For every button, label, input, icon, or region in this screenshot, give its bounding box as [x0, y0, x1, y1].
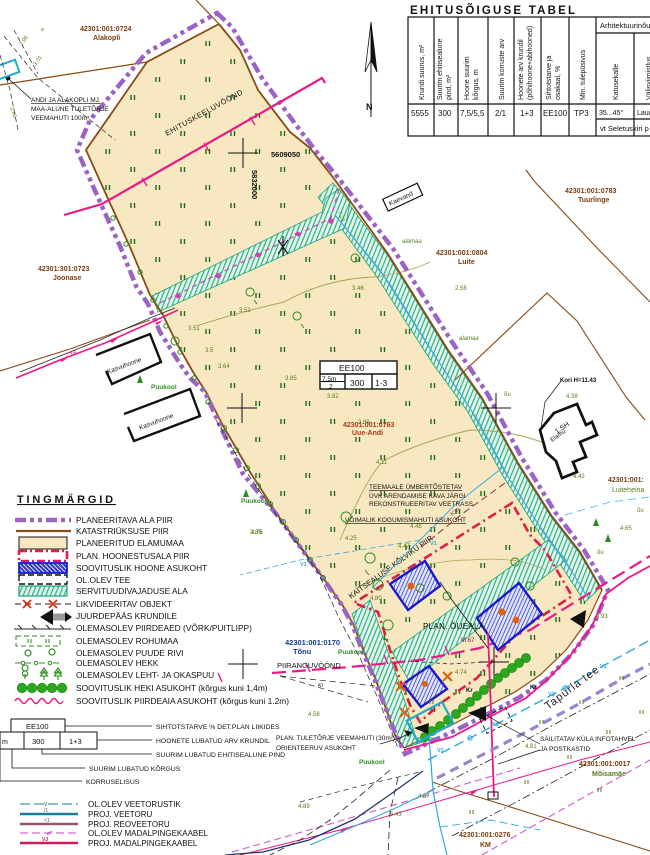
svg-text:PROJ. VEETORU: PROJ. VEETORU	[88, 810, 153, 819]
svg-text:EE100: EE100	[339, 363, 365, 373]
svg-text:Krundi suurus, m²: Krundi suurus, m²	[419, 44, 426, 100]
svg-text:JA POSTKASTID: JA POSTKASTID	[540, 746, 591, 753]
svg-text:3.46: 3.46	[352, 286, 364, 292]
svg-text:1+3: 1+3	[520, 109, 534, 118]
svg-text:42301:001:: 42301:001:	[608, 477, 644, 484]
svg-text:Alakopli: Alakopli	[93, 35, 120, 42]
svg-text:VÕIMALIK KOGUMISMAHUTI ASUKOHT: VÕIMALIK KOGUMISMAHUTI ASUKOHT	[345, 515, 466, 524]
svg-text:Hoonete arv krundil: Hoonete arv krundil	[518, 39, 525, 100]
svg-text:42301:001:0724: 42301:001:0724	[80, 26, 131, 33]
svg-text:m: m	[2, 739, 8, 746]
svg-text:SUURIM LUBATUD EHITISEALUNE PI: SUURIM LUBATUD EHITISEALUNE PIND	[156, 752, 285, 759]
svg-text:V1: V1	[492, 722, 499, 728]
svg-text:Ki: Ki	[318, 683, 324, 689]
svg-text:Laud: Laud	[637, 110, 650, 117]
svg-text:SERVITUUDIVAJADUSE ALA: SERVITUUDIVAJADUSE ALA	[76, 586, 188, 596]
svg-text:Sihtotstarve ja: Sihtotstarve ja	[546, 56, 553, 100]
svg-text:SOOVITUSLIK PIIRDEAIA ASUKOHT: SOOVITUSLIK PIIRDEAIA ASUKOHT (kõrgus ku…	[76, 696, 289, 706]
svg-text:2: 2	[329, 384, 333, 391]
svg-text:õu: õu	[637, 508, 644, 514]
svg-text:OL.OLEV MADALPINGEKAABEL: OL.OLEV MADALPINGEKAABEL	[88, 829, 209, 838]
svg-text:SOOVITUSLIK HEKI ASUKOHT (kõrg: SOOVITUSLIK HEKI ASUKOHT (kõrgus kuni 1,…	[76, 683, 268, 693]
svg-text:Luiteheina: Luiteheina	[612, 487, 644, 494]
svg-text:EE100: EE100	[26, 722, 49, 731]
svg-text:Suurim ehitisealune: Suurim ehitisealune	[437, 38, 444, 100]
svg-text:alamaa: alamaa	[402, 239, 422, 245]
svg-text:N: N	[366, 102, 373, 112]
svg-text:V1: V1	[600, 664, 607, 670]
svg-text:<1: <1	[44, 818, 50, 824]
svg-text:4.25: 4.25	[345, 536, 357, 542]
svg-text:Välisviimistlus: Välisviimistlus	[646, 56, 650, 100]
svg-text:2/1: 2/1	[495, 109, 507, 118]
svg-text:PIIRANGUVÖÖND: PIIRANGUVÖÖND	[277, 661, 341, 670]
svg-text:PLANEERITUD ELAMUMAA: PLANEERITUD ELAMUMAA	[76, 538, 184, 548]
svg-text:REKONSTRUEERITAV VEETRASS: REKONSTRUEERITAV VEETRASS	[369, 501, 474, 508]
svg-text:VJ: VJ	[42, 837, 48, 843]
svg-text:Mõisamäe: Mõisamäe	[592, 771, 626, 778]
svg-text:PLAN. ÕUEALA: PLAN. ÕUEALA	[423, 622, 485, 631]
svg-text:Joonase: Joonase	[53, 275, 82, 282]
svg-text:V1: V1	[430, 541, 437, 547]
svg-text:2.58: 2.58	[455, 286, 467, 292]
svg-text:Luite: Luite	[458, 259, 475, 266]
svg-text:4.74: 4.74	[455, 670, 467, 676]
svg-text:ÜVK ARENDAMISE KAVA JÄRGI: ÜVK ARENDAMISE KAVA JÄRGI	[369, 492, 466, 500]
svg-text:300: 300	[350, 378, 364, 388]
svg-text:PLAN. TULETÕRJE VEEMAHUTI (30m: PLAN. TULETÕRJE VEEMAHUTI (30m²)	[276, 733, 395, 742]
svg-text:7,5m: 7,5m	[322, 376, 336, 383]
svg-text:õu: õu	[504, 392, 511, 398]
svg-text:OLEMASOLEV PUUDE RIVI: OLEMASOLEV PUUDE RIVI	[76, 648, 184, 658]
svg-text:42301:001:0017: 42301:001:0017	[579, 761, 630, 768]
svg-text:4.48: 4.48	[410, 524, 422, 530]
svg-text:õu: õu	[597, 550, 604, 556]
svg-text:4.47: 4.47	[398, 544, 410, 550]
svg-text:3.89: 3.89	[358, 420, 370, 426]
svg-text:OLEMASOLEV PIIRDEAED (VÕRK/PUI: OLEMASOLEV PIIRDEAED (VÕRK/PUITLIPP)	[76, 623, 252, 633]
svg-text:42301:001:0276: 42301:001:0276	[459, 832, 510, 839]
svg-text:Suurim korruste arv: Suurim korruste arv	[499, 38, 506, 100]
svg-text:LIKVIDEERITAV OBJEKT: LIKVIDEERITAV OBJEKT	[76, 599, 172, 609]
svg-text:4.58: 4.58	[308, 712, 320, 718]
svg-text:3.85: 3.85	[250, 530, 262, 536]
svg-text:OL.OLEV VEETORUSTIK: OL.OLEV VEETORUSTIK	[88, 800, 181, 809]
svg-text:TP3: TP3	[574, 109, 589, 118]
svg-text:4.11: 4.11	[376, 460, 388, 466]
svg-text:4.38: 4.38	[566, 394, 578, 400]
svg-text:Arhitektuurinõuded: Arhitektuurinõuded	[600, 21, 650, 30]
svg-text:alamaa: alamaa	[459, 336, 479, 342]
svg-text:Puukool: Puukool	[338, 649, 364, 656]
svg-text:4.42: 4.42	[573, 474, 585, 480]
svg-text:EHITUSÕIGUSE TABEL: EHITUSÕIGUSE TABEL	[410, 4, 577, 17]
svg-text:300: 300	[32, 737, 45, 746]
svg-text:VEEMAHUTI 100m³: VEEMAHUTI 100m³	[31, 115, 90, 122]
svg-text:/1: /1	[44, 808, 48, 814]
svg-text:42301:001:0804: 42301:001:0804	[436, 250, 487, 257]
svg-text:Kr: Kr	[466, 688, 473, 694]
svg-text:42301:001:0170: 42301:001:0170	[285, 638, 340, 647]
svg-text:4.93: 4.93	[596, 614, 608, 620]
svg-text:V1: V1	[548, 692, 555, 698]
svg-text:300: 300	[438, 109, 452, 118]
svg-text:Kr: Kr	[530, 685, 537, 691]
svg-text:4.81: 4.81	[525, 744, 537, 750]
svg-text:42301:001:0783: 42301:001:0783	[565, 188, 616, 195]
svg-text:KM: KM	[480, 842, 491, 849]
svg-text:5832000: 5832000	[250, 170, 259, 199]
svg-text:M.67: M.67	[461, 638, 475, 644]
svg-text:HOONETE LUBATUD ARV KRUNDIL: HOONETE LUBATUD ARV KRUNDIL	[156, 738, 270, 745]
svg-text:3.82: 3.82	[327, 394, 339, 400]
svg-text:PROJ. MADALPINGEKAABEL: PROJ. MADALPINGEKAABEL	[88, 839, 198, 848]
svg-text:Min. tulepüsivus: Min. tulepüsivus	[580, 49, 587, 100]
svg-text:OLEMASOLEV HEKK: OLEMASOLEV HEKK	[76, 658, 159, 668]
svg-text:4.65: 4.65	[620, 526, 632, 532]
svg-text:SÄILITATAV KÜLA INFOTAHVEL: SÄILITATAV KÜLA INFOTAHVEL	[540, 735, 636, 743]
svg-text:vt Seletuskiri p: vt Seletuskiri p	[600, 124, 649, 133]
svg-text:TEEMAALE ÜMBERTÕSTETAV: TEEMAALE ÜMBERTÕSTETAV	[369, 482, 463, 491]
svg-text:MAA-ALUNE TULETÕRJE: MAA-ALUNE TULETÕRJE	[31, 104, 109, 113]
svg-text:4.80: 4.80	[370, 596, 382, 602]
svg-text:1+3: 1+3	[69, 737, 82, 746]
svg-text:pind, m²: pind, m²	[446, 74, 453, 100]
svg-text:3.5: 3.5	[205, 348, 214, 354]
svg-text:5.43: 5.43	[390, 812, 402, 818]
svg-text:Tõnu: Tõnu	[293, 647, 312, 656]
svg-text:35...45°: 35...45°	[599, 109, 623, 117]
svg-text:5555: 5555	[411, 109, 429, 118]
svg-text:5609050: 5609050	[271, 150, 300, 159]
svg-text:Katusekalle: Katusekalle	[613, 64, 620, 100]
svg-text:Uue-Andi: Uue-Andi	[352, 430, 383, 437]
svg-text:7,5/5,5: 7,5/5,5	[460, 109, 485, 118]
svg-text:3.85: 3.85	[285, 376, 297, 382]
svg-text:JUURDEPÄÄS KRUNDILE: JUURDEPÄÄS KRUNDILE	[76, 611, 177, 621]
svg-text:V1: V1	[437, 748, 444, 754]
svg-text:3.51: 3.51	[188, 326, 200, 332]
svg-text:SIHTOTSTARVE % DET.PLAN LIIKID: SIHTOTSTARVE % DET.PLAN LIIKIDES	[156, 724, 280, 731]
svg-text:Kori H=11.43: Kori H=11.43	[560, 378, 597, 384]
svg-text:Hoone suurim: Hoone suurim	[464, 56, 471, 100]
svg-text:kõrgus, m: kõrgus, m	[473, 69, 480, 100]
svg-text:Tuurlinge: Tuurlinge	[578, 197, 609, 204]
svg-text:Puukool: Puukool	[151, 384, 177, 391]
svg-text:1-3: 1-3	[375, 378, 388, 388]
svg-text:EE100: EE100	[543, 109, 568, 118]
svg-text:4.87: 4.87	[418, 794, 430, 800]
svg-text:PLAN. HOONESTUSALA PIIR: PLAN. HOONESTUSALA PIIR	[76, 551, 190, 561]
svg-text:(põhihoone+abihooned): (põhihoone+abihooned)	[527, 26, 534, 100]
svg-text:SOOVITUSLIK HOONE ASUKOHT: SOOVITUSLIK HOONE ASUKOHT	[76, 563, 207, 573]
svg-text:4.89: 4.89	[298, 804, 310, 810]
svg-text:OLEMASOLEV ROHUMAA: OLEMASOLEV ROHUMAA	[76, 636, 179, 646]
svg-text:TINGMÄRGID: TINGMÄRGID	[17, 493, 116, 506]
svg-text:OLEMASOLEV LEHT- JA OKASPUU: OLEMASOLEV LEHT- JA OKASPUU	[76, 670, 214, 680]
svg-text:OL.OLEV TEE: OL.OLEV TEE	[76, 575, 131, 585]
svg-text:ORIENTEERUV ASUKOHT: ORIENTEERUV ASUKOHT	[276, 745, 356, 752]
svg-text:3.64: 3.64	[218, 364, 230, 370]
svg-text:3.51: 3.51	[239, 308, 251, 314]
svg-text:Puukool: Puukool	[241, 498, 267, 505]
svg-text:KORRUSELISUS: KORRUSELISUS	[86, 779, 140, 786]
svg-text:V1: V1	[300, 562, 307, 568]
svg-text:Puukool: Puukool	[359, 759, 385, 766]
svg-text:42301:301:0723: 42301:301:0723	[38, 266, 89, 273]
svg-text:SUURIM LUBATUD KÕRGUS: SUURIM LUBATUD KÕRGUS	[89, 764, 181, 773]
svg-text:PLANEERITAVA ALA PIIR: PLANEERITAVA ALA PIIR	[76, 515, 173, 525]
svg-text:PROJ. REOVEETORU: PROJ. REOVEETORU	[88, 820, 170, 829]
svg-text:KATASTRIÜKSUSE PIIR: KATASTRIÜKSUSE PIIR	[76, 526, 169, 536]
svg-text:osakaal, %: osakaal, %	[555, 66, 562, 100]
